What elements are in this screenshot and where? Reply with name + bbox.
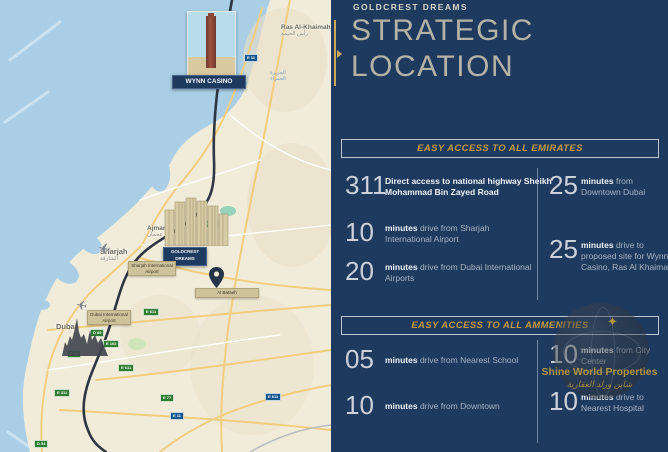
sharjah-airport-label: Sharjah International Airport xyxy=(128,261,176,276)
road-shield: E 77 xyxy=(160,394,174,402)
section-header-emirates: EASY ACCESS TO ALL EMIRATES xyxy=(341,139,659,158)
stat-description: minutes drive from Downtown xyxy=(385,401,565,412)
stat-number: 10 xyxy=(345,392,374,418)
watermark-text: Shine World Properties xyxy=(531,366,668,378)
stat-description: minutes drive to proposed site for Wynn … xyxy=(581,240,668,273)
road-shield: E 311 xyxy=(54,389,70,397)
stat-number: 20 xyxy=(345,258,374,284)
road-shield: E 611 xyxy=(143,308,159,316)
stat-number: 10 xyxy=(549,388,578,414)
location-pin-icon[interactable] xyxy=(209,267,224,288)
strategic-location-page: E 11 E 311 E 611 D 89 E 44 E 102 E 311 E… xyxy=(0,0,668,452)
stat-description: minutes drive from Dubai International A… xyxy=(385,262,560,284)
map[interactable]: E 11 E 311 E 611 D 89 E 44 E 102 E 311 E… xyxy=(0,0,331,452)
map-label-ras-al-khaimah: Ras Al-Khaimahرأس الخيمة xyxy=(281,24,331,37)
title-accent-line xyxy=(334,20,336,86)
stat-description: Direct access to national highway Sheikh… xyxy=(385,176,560,198)
watermark-text-arabic: شاين ورلد العقارية xyxy=(531,379,668,390)
map-label-coastal-arabic: الجزيرة الحمراء xyxy=(262,70,294,82)
goldcrest-towers-image xyxy=(163,196,231,246)
title-accent-arrow-icon xyxy=(337,50,342,58)
road-shield: D 54 xyxy=(34,440,48,448)
stat-number: 05 xyxy=(345,346,374,372)
brand-name: GOLDCREST DREAMS xyxy=(353,2,468,12)
page-title-line1: STRATEGIC xyxy=(351,16,534,46)
star-icon: ✦ xyxy=(607,314,618,330)
stat-description: minutes drive from Sharjah International… xyxy=(385,223,517,245)
page-title-line2: LOCATION xyxy=(351,52,514,82)
stat-number: 25 xyxy=(549,172,578,198)
stat-description: minutes from Downtown Dubai xyxy=(581,176,659,198)
stat-number: 10 xyxy=(345,219,374,245)
wynn-casino-label: WYNN CASINO xyxy=(172,75,246,89)
dubai-skyline-image xyxy=(62,318,108,356)
pin-place-label: Al Bataeh xyxy=(195,288,259,298)
wynn-tower-image xyxy=(187,11,236,77)
road-shield: E 611 xyxy=(118,364,134,372)
stat-description: minutes drive from Nearest School xyxy=(385,355,565,366)
road-shield: E 611 xyxy=(265,393,281,401)
road-shield: E 11 xyxy=(170,412,184,420)
stat-number: 25 xyxy=(549,236,578,262)
road-shield: E 11 xyxy=(244,54,258,62)
info-panel: GOLDCREST DREAMS STRATEGIC LOCATION EASY… xyxy=(331,0,668,452)
stat-number: 311 xyxy=(345,172,386,198)
